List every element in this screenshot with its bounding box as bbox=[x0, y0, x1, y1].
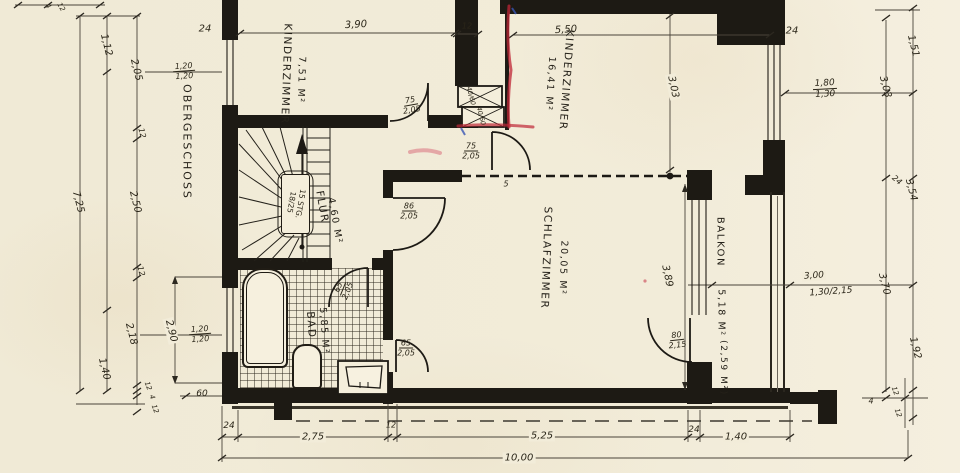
window-label-left-upper: 1,20 1,20 bbox=[172, 61, 195, 81]
dim-top-kz1: 3,90 bbox=[345, 19, 368, 31]
window-height: 1,20 bbox=[191, 334, 209, 344]
dim-left-d: 2,50 bbox=[127, 190, 143, 214]
wall-bottom-extension bbox=[790, 392, 820, 404]
wall-flur-sz-b bbox=[383, 250, 393, 340]
door-width: 65 bbox=[399, 339, 413, 349]
door-width: 86 bbox=[402, 202, 416, 212]
dim-right-wall: 24 bbox=[890, 173, 904, 186]
dim-left-e: 12 bbox=[135, 265, 146, 277]
door-height: 2,05 bbox=[400, 212, 418, 221]
dim-kz2-depth: 3,03 bbox=[665, 73, 681, 101]
dim-bottom-total: 10,00 bbox=[503, 453, 536, 464]
dim-left-edge-bot-b: 4 bbox=[147, 394, 156, 401]
dim-balkon-opening-total: 3,00 bbox=[802, 270, 827, 282]
door-width: 75 bbox=[464, 142, 478, 152]
shaft-label-1: 40/60 bbox=[465, 86, 477, 106]
dim-left-plinth: 60 bbox=[196, 389, 207, 399]
door-height: 2,05 bbox=[397, 349, 415, 358]
dim-bottom-b: 12 bbox=[386, 421, 396, 430]
balkon-railing-mid bbox=[777, 196, 778, 392]
bathtub bbox=[242, 268, 288, 368]
balkon-railing-outer bbox=[770, 192, 772, 392]
door-label-sz: 86 2,05 bbox=[400, 202, 418, 221]
dim-right-inner-b: 3,70 bbox=[876, 272, 892, 296]
dim-bottom-a: 2,75 bbox=[300, 432, 326, 443]
window-height: 1,20 bbox=[175, 71, 193, 81]
wall-sz-top-b bbox=[687, 170, 712, 184]
window-label-right-kz2: 1,80 1,30 bbox=[812, 78, 837, 100]
wall-flur-sz-a bbox=[383, 170, 393, 198]
dim-top-wall-left: 24 bbox=[199, 24, 212, 35]
wall-right-outer-a bbox=[763, 14, 785, 40]
room-balkon-name: BALKON bbox=[715, 217, 726, 267]
wall-pier bbox=[274, 403, 292, 420]
room-kinderzimmer2-area: 16,41 M² bbox=[543, 56, 558, 112]
dim-bottom-d: 1,40 bbox=[723, 432, 749, 443]
wall-bad-top-a bbox=[238, 258, 332, 270]
wall-bottom-inner-line bbox=[232, 406, 788, 409]
wall-bottom-outer bbox=[222, 388, 790, 403]
dim-bottom-c: 5,25 bbox=[529, 431, 555, 442]
door-label-balkon: 80 2,15 bbox=[667, 330, 687, 351]
dim-left-f: 2,18 bbox=[123, 322, 139, 346]
dim-top-kz2: 5,50 bbox=[555, 24, 578, 36]
wall-top-outer bbox=[500, 0, 717, 14]
dim-left-g: 1,40 bbox=[96, 357, 112, 381]
wall-bad-top-stub bbox=[372, 258, 383, 270]
door-label-bad-sz: 65 2,05 bbox=[397, 339, 415, 358]
floorplan-sheet: 15 STG. 18/25 OBERGESCHOSS KINDERZIMMER … bbox=[0, 0, 960, 473]
wall-kz1-bottom-a bbox=[238, 115, 388, 128]
door-label-kz1: 75 2,05 bbox=[401, 94, 422, 116]
dim-left-c: 12 bbox=[136, 127, 147, 139]
dim-sz-depth: 3,89 bbox=[659, 264, 674, 288]
wall-left-outer-a bbox=[222, 0, 238, 40]
dim-right-edge-b: 12 bbox=[890, 385, 901, 396]
dim-right-edge-a: 4 bbox=[868, 397, 873, 406]
dim-left-edge-top-b: 12 bbox=[55, 1, 66, 13]
red-marker-annotations bbox=[410, 6, 647, 283]
dim-right-edge-c: 12 bbox=[893, 407, 904, 418]
door-height: 2,05 bbox=[462, 152, 480, 161]
dim-partition: 5 bbox=[503, 180, 508, 189]
wall-left-outer-b bbox=[222, 105, 238, 288]
wall-balkon-corner bbox=[745, 175, 785, 195]
wall-right-outer-b bbox=[763, 140, 785, 178]
dim-right-outer-c: 1,92 bbox=[907, 336, 923, 360]
floor-title: OBERGESCHOSS bbox=[181, 84, 194, 200]
room-bad-name: BAD bbox=[304, 311, 318, 339]
wall-kz2-partition bbox=[505, 14, 509, 130]
dim-left-edge-bot-c: 12 bbox=[150, 403, 161, 414]
dim-right-outer-a: 1,51 bbox=[905, 34, 921, 58]
window-height: 1,30 bbox=[815, 89, 836, 100]
room-kinderzimmer2-name: KINDERZIMMER bbox=[556, 29, 575, 131]
dim-balkon-opening-size: 1,30/2,15 bbox=[809, 286, 853, 299]
dim-right-inner-a: 3,03 bbox=[877, 75, 893, 99]
wall-bottom-end-block bbox=[818, 390, 837, 424]
door-height: 2,15 bbox=[668, 340, 687, 351]
room-balkon-area: 5,18 M² bbox=[716, 289, 727, 336]
door-label-kz2: 75 2,05 bbox=[462, 142, 480, 161]
room-kinderzimmer1-name: KINDERZIMMER bbox=[278, 23, 294, 125]
dim-left-edge-bot-a: 12 bbox=[143, 380, 154, 391]
toilet bbox=[292, 344, 322, 389]
dim-bottom-wall-right: 24 bbox=[688, 425, 699, 435]
dim-left-total: 7,25 bbox=[70, 190, 86, 214]
wall-kz1-right bbox=[455, 0, 478, 86]
dim-left-edge-top-a: 4 bbox=[43, 2, 52, 10]
door-height: 2,05 bbox=[402, 104, 421, 116]
wall-sz-top-a bbox=[393, 170, 462, 182]
dim-top-wall-right: 24 bbox=[786, 26, 799, 37]
dim-right-outer-b: 3,54 bbox=[903, 178, 919, 202]
room-schlafzimmer-name: SCHLAFZIMMER bbox=[538, 206, 554, 309]
dim-left-window-height: 2,90 bbox=[162, 317, 179, 345]
dim-top-shaft: 12 bbox=[462, 22, 472, 31]
wall-balkon-a bbox=[687, 184, 712, 200]
wall-kz1-bottom-b bbox=[428, 115, 478, 128]
room-balkon-area-secondary: (2,59 M²) bbox=[718, 340, 728, 396]
dim-bottom-wall-left: 24 bbox=[223, 421, 234, 431]
balkon-railing-inner bbox=[783, 192, 785, 392]
window-label-left-lower: 1,20 1,20 bbox=[188, 324, 211, 344]
dim-left-a: 1,12 bbox=[98, 33, 114, 57]
room-kinderzimmer1-area: 7,51 M² bbox=[295, 56, 308, 104]
room-schlafzimmer-area: 20,05 M² bbox=[557, 240, 570, 295]
dim-left-b: 2,05 bbox=[128, 58, 144, 82]
